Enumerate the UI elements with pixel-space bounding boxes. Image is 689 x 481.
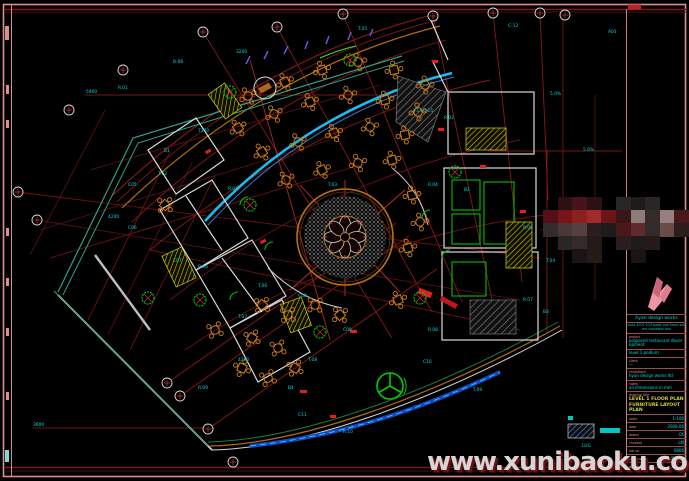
field-label: drawn <box>629 433 639 437</box>
floor-medallion <box>297 189 393 285</box>
row-value: — <box>629 363 684 368</box>
grid-bubble-icon <box>162 378 172 388</box>
dim-label: C05 <box>128 182 137 188</box>
dim-label: C09 <box>343 327 352 333</box>
drawing-title-cell: drawing title LEVEL 1 FLOOR PLAN FURNITU… <box>627 391 686 414</box>
grid-bubble-icon <box>175 391 185 401</box>
cad-drawing-viewport: 54003600T.05C-12A013200B-06R.015.0%F.L+0… <box>0 0 689 481</box>
dim-label: T.03 <box>327 182 337 188</box>
dim-label: T.05 <box>357 26 367 32</box>
dim-label: 7200 <box>198 128 209 134</box>
legend-swatch <box>568 416 620 438</box>
plant-icon <box>244 199 256 211</box>
grid-bubble-icon <box>488 8 498 18</box>
plant-icon <box>142 292 154 304</box>
title-block-rows: project proposed restaurant development … <box>627 333 686 392</box>
dim-label: T.06 <box>257 283 267 289</box>
grid-bubble-icon <box>64 105 74 115</box>
field-value: 1:100 <box>672 416 684 421</box>
grid-bubble-icon <box>228 457 238 467</box>
dim-label: R.02 <box>444 115 454 121</box>
table-and-chairs <box>386 288 410 312</box>
dim-label: R.09 <box>198 385 208 391</box>
dim-label: C-12 <box>508 23 518 29</box>
company-address: suite 2001 20/f tower one times square c… <box>627 322 686 333</box>
title-block-field: drawn CK <box>627 430 686 438</box>
title-block-row: level 1 podium <box>627 349 686 357</box>
grid-bubble-icon <box>13 187 23 197</box>
field-value: 2008.06 <box>667 424 684 429</box>
title-block-row: notes all dimensions in mm <box>627 380 686 392</box>
dim-label: C10 <box>423 359 432 365</box>
grid-bubble-icon <box>203 424 213 434</box>
title-block-row: consultant hyan design works ltd <box>627 368 686 380</box>
company-name: hyan design works <box>627 314 686 322</box>
grid-bubble-icon <box>535 8 545 18</box>
dim-label: R.06 <box>198 264 208 270</box>
green-rooms <box>230 46 514 330</box>
grid-bubble-icon <box>32 215 42 225</box>
dim-label: A01 <box>608 29 617 35</box>
dim-label: 4200 <box>238 357 249 363</box>
plant-icon <box>194 294 206 306</box>
site-watermark: www.xunibaoku.com <box>427 447 689 477</box>
dim-label: 4200 <box>108 214 119 220</box>
drawing-title-value: LEVEL 1 FLOOR PLAN FURNITURE LAYOUT PLAN <box>629 397 684 413</box>
grid-bubble-icon <box>428 11 438 21</box>
dim-label: T.08 <box>307 357 317 363</box>
row-value: level 1 podium <box>629 351 684 356</box>
company-logo-icon <box>627 268 686 314</box>
dim-label: B2 <box>464 187 470 193</box>
dim-label: R.01 <box>118 85 128 91</box>
table-and-chairs <box>256 366 280 390</box>
dim-label: 5400 <box>86 89 97 95</box>
dim-label: R.04 <box>428 182 438 188</box>
dim-label: 3200 <box>236 49 247 55</box>
title-block-spacer <box>627 9 686 268</box>
grid-bubble-icon <box>198 27 208 37</box>
field-value: CK <box>679 432 684 437</box>
dim-label: F.L+0.15 <box>414 108 433 114</box>
title-block-row: project proposed restaurant development <box>627 333 686 349</box>
plant-icon <box>314 326 326 338</box>
dim-label: C07 <box>173 258 182 264</box>
field-label: date <box>629 425 636 429</box>
dim-label: 5.0% <box>550 91 561 97</box>
grid-bubble-icon <box>272 22 282 32</box>
row-value: proposed restaurant development <box>629 339 684 348</box>
table-and-chairs <box>265 335 290 360</box>
floor-plan-canvas: 54003600T.05C-12A013200B-06R.015.0%F.L+0… <box>0 0 689 481</box>
row-value: hyan design works ltd <box>629 374 684 379</box>
title-block-field: date 2008.06 <box>627 422 686 430</box>
dim-label: 5.0% <box>583 147 594 153</box>
dim-label: R.03 <box>228 186 238 192</box>
dim-label: R.08 <box>428 327 438 333</box>
title-block-field: scale 1:100 <box>627 414 686 422</box>
table-and-chairs <box>152 192 178 218</box>
dim-label: R.05 <box>523 225 533 231</box>
table-and-chairs <box>401 184 423 206</box>
dim-label: 3600 <box>33 422 44 428</box>
dim-label: B-06 <box>173 59 183 65</box>
dim-label: C11 <box>298 412 307 418</box>
table-and-chairs <box>327 302 353 328</box>
revolving-door-symbol <box>377 373 406 399</box>
dim-label: T.04 <box>545 258 555 264</box>
dim-label: B1 <box>164 148 170 154</box>
grid-bubble-icon <box>338 9 348 19</box>
dim-label: T.09 <box>472 387 482 393</box>
field-label: checked <box>629 441 642 445</box>
grid-bubble-icon <box>560 10 570 20</box>
title-block: hyan design works suite 2001 20/f tower … <box>626 9 686 470</box>
dim-label: C06 <box>128 225 137 231</box>
dim-label: B3 <box>543 309 549 315</box>
field-label: scale <box>629 417 637 421</box>
grid-bubble-icon <box>118 65 128 75</box>
dim-label: T.07 <box>237 314 247 320</box>
dim-label: R.07 <box>523 297 533 303</box>
dim-label: R.10 <box>343 429 353 435</box>
dim-label: B4 <box>288 385 294 391</box>
margin-ticks <box>5 26 9 462</box>
row-value: all dimensions in mm <box>629 386 684 391</box>
title-block-row: client — <box>627 357 686 369</box>
dim-label: C08 <box>298 293 307 299</box>
field-value: LM <box>678 440 684 445</box>
title-block-field: checked LM <box>627 438 686 446</box>
dim-label: T.02 <box>157 171 167 177</box>
table-and-chairs <box>346 151 369 174</box>
table-and-chairs <box>359 116 382 139</box>
